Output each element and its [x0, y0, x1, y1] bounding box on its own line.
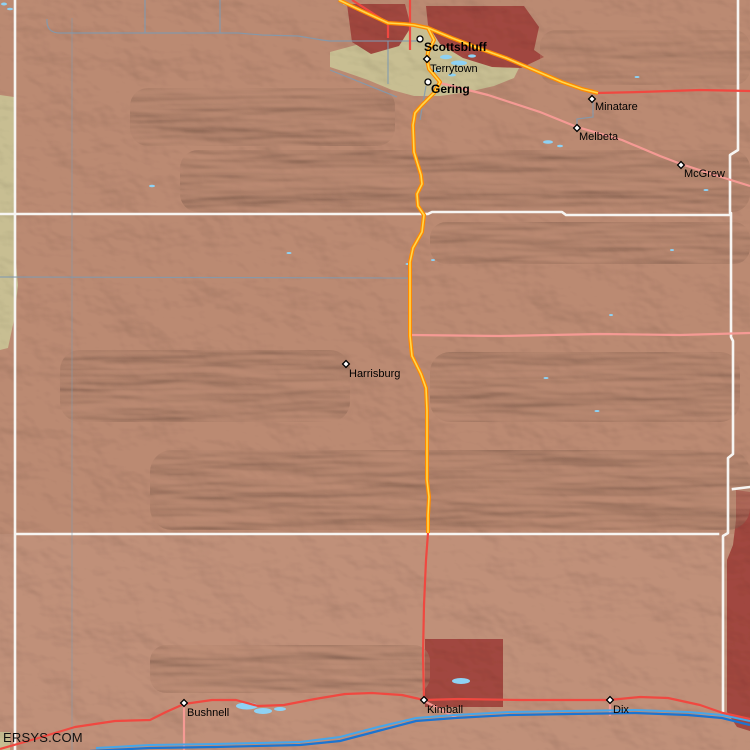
town-label: Melbeta: [579, 131, 619, 143]
topo-map: ScottsbluffTerrytownGeringMinatareMelbet…: [0, 0, 750, 750]
town-label: Kimball: [427, 704, 463, 716]
town-label: Bushnell: [187, 707, 229, 719]
circle-town-marker-icon: [417, 36, 423, 42]
kimball-urban-area: [425, 639, 503, 707]
town-label: Terrytown: [430, 63, 478, 75]
map-canvas: ScottsbluffTerrytownGeringMinatareMelbet…: [0, 0, 750, 750]
terrain-south-county: [0, 534, 750, 750]
town-label: McGrew: [684, 168, 725, 180]
town-label: Gering: [431, 82, 470, 96]
town-gering: Gering: [425, 79, 470, 96]
town-label: Minatare: [595, 101, 638, 113]
town-label: Scottsbluff: [424, 40, 488, 54]
town-label: Dix: [613, 704, 629, 716]
town-label: Harrisburg: [349, 368, 400, 380]
attribution: ERSYS.COM: [3, 730, 83, 745]
